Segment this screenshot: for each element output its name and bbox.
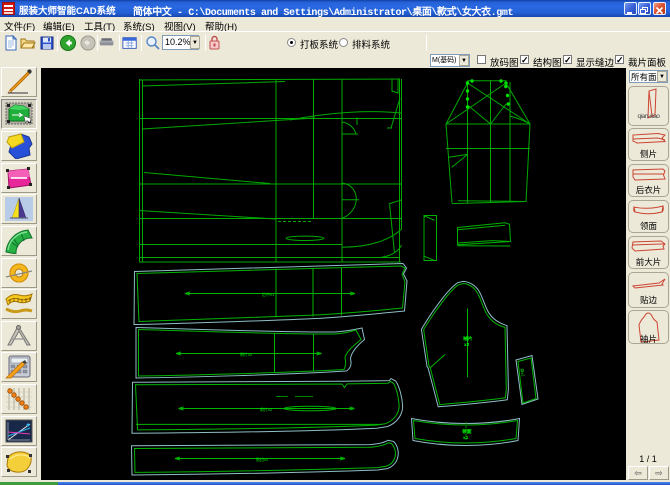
svg-text:后中x1: 后中x1 [262,291,275,297]
svg-text:袋x2: 袋x2 [519,368,526,378]
svg-text:袖片: 袖片 [462,335,473,342]
svg-text:x2: x2 [464,342,470,348]
svg-text:侧片x2: 侧片x2 [240,351,253,357]
svg-text:贴边x2: 贴边x2 [256,456,269,462]
svg-text:前片x2: 前片x2 [260,406,273,412]
svg-text:领面: 领面 [462,428,472,435]
svg-text:x1: x1 [463,435,469,441]
